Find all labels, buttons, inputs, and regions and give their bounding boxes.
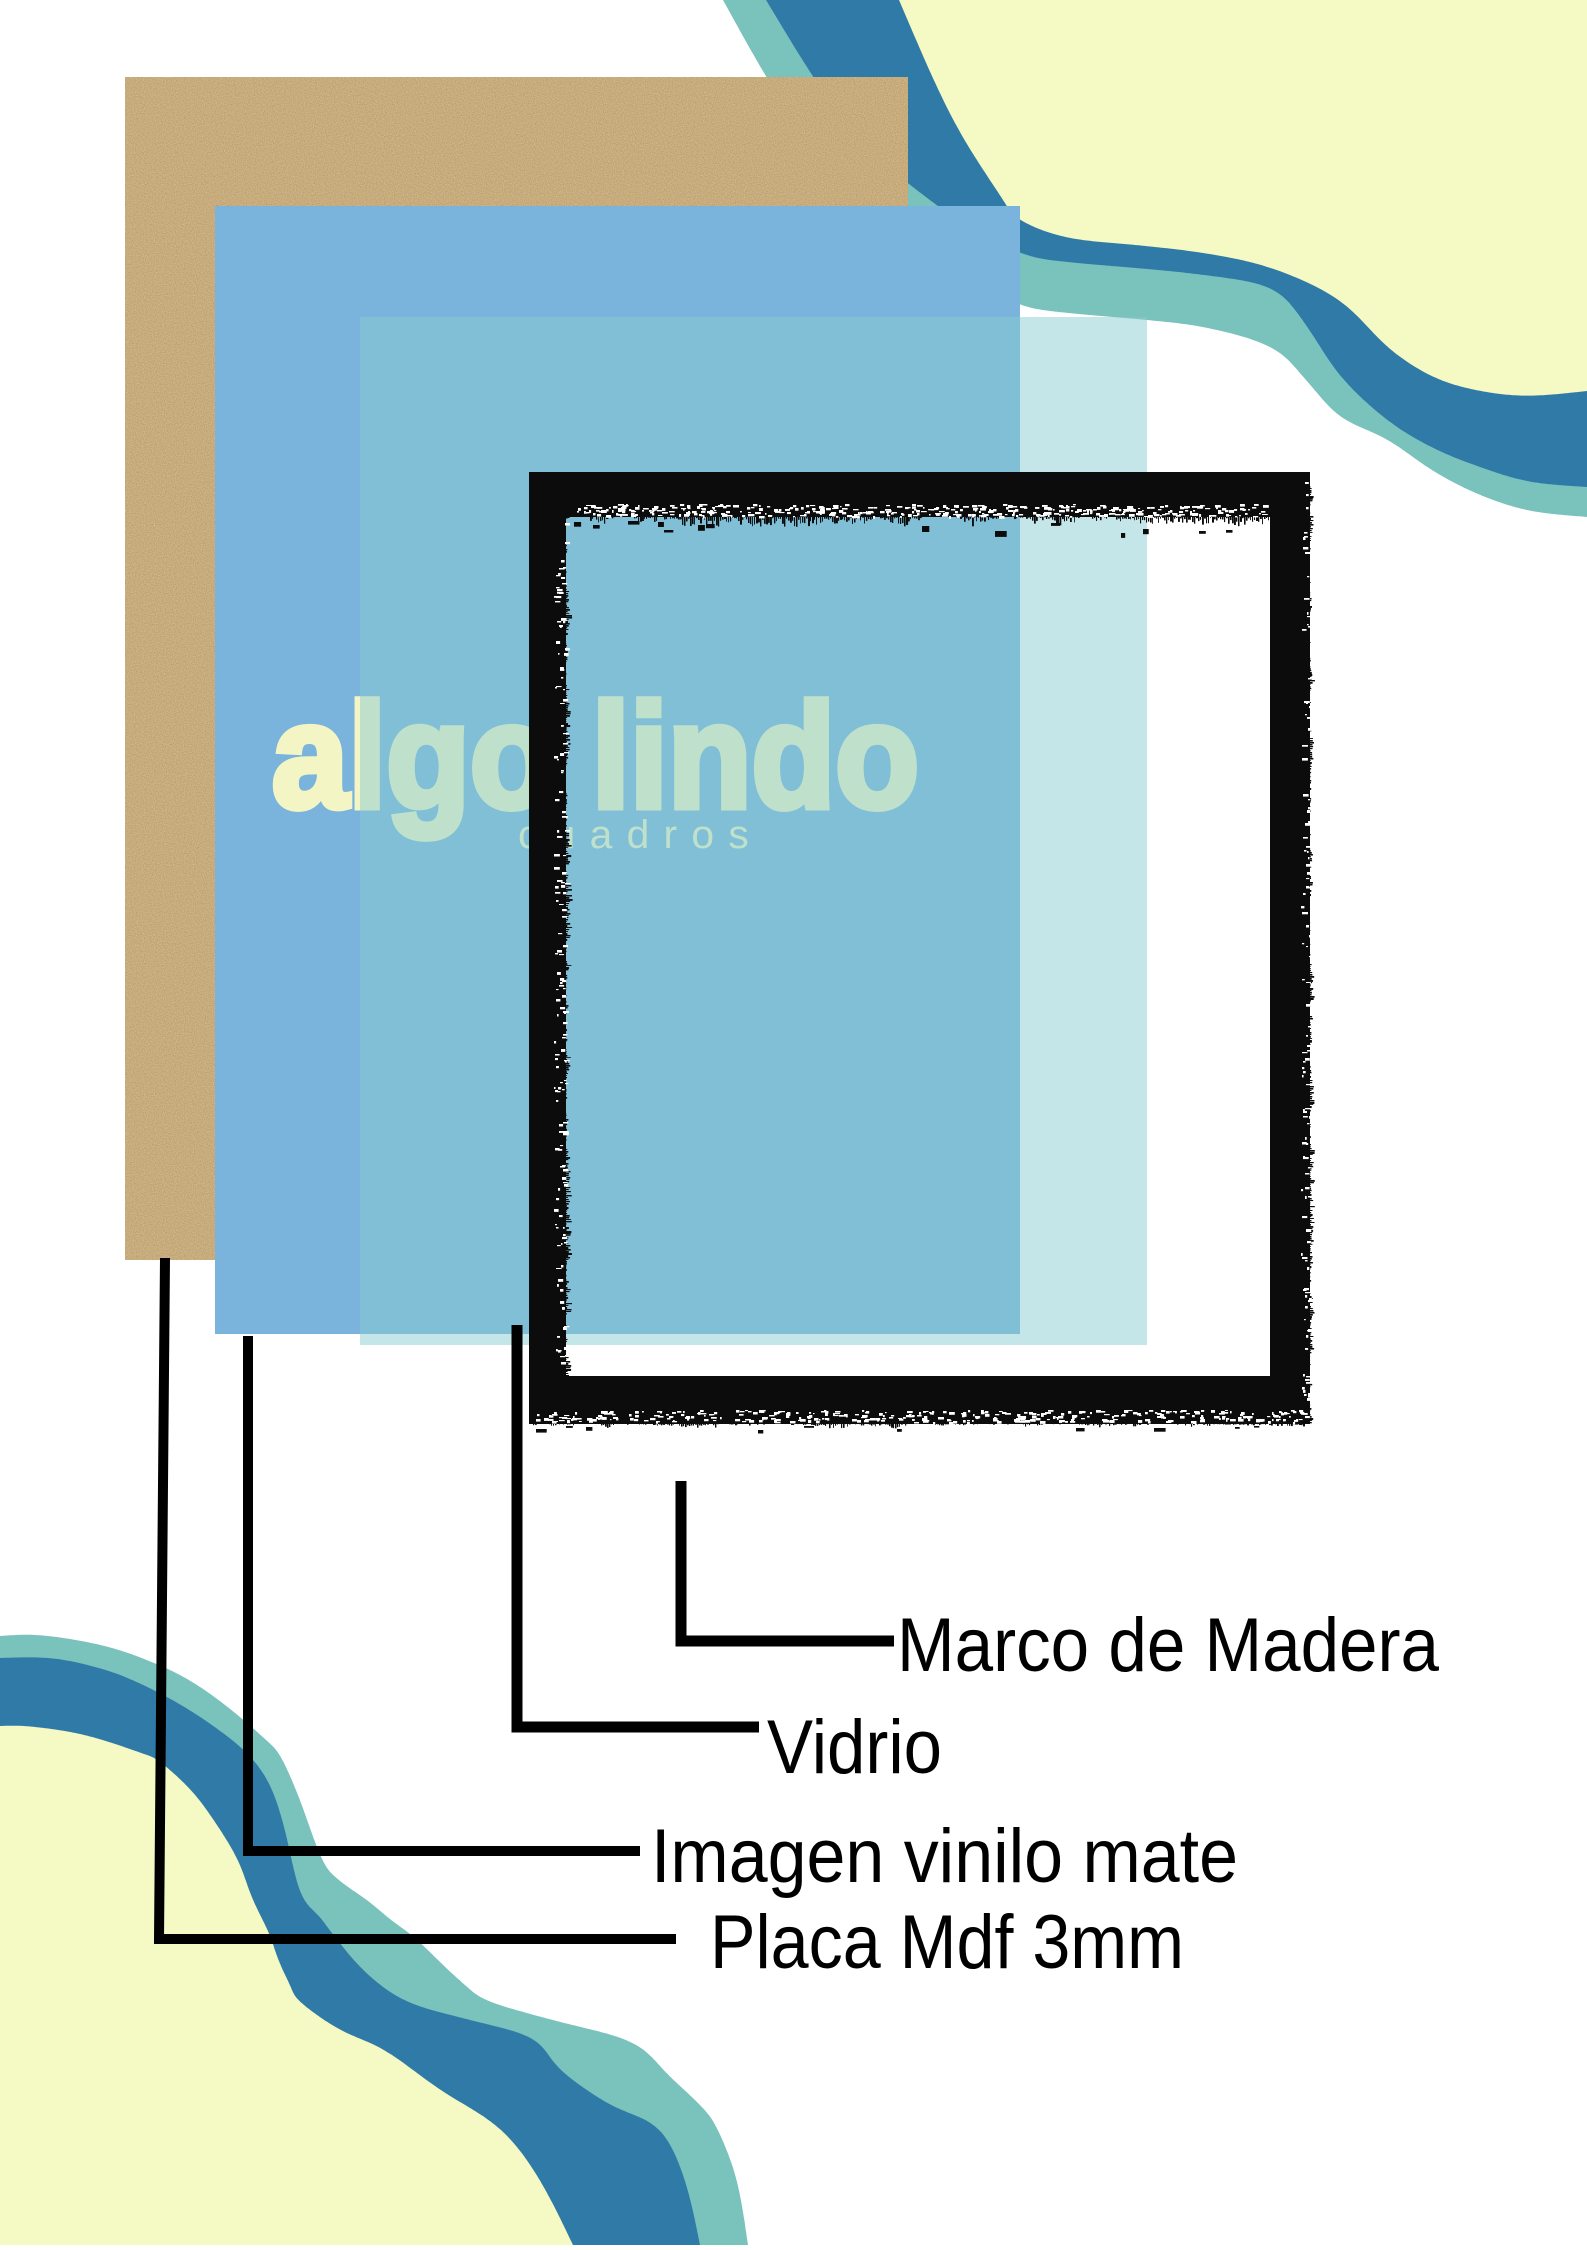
svg-text:Placa Mdf 3mm: Placa Mdf 3mm [710, 1900, 1184, 1985]
svg-text:Marco de Madera: Marco de Madera [897, 1603, 1440, 1688]
svg-text:Imagen vinilo mate: Imagen vinilo mate [651, 1814, 1238, 1899]
svg-text:Vidrio: Vidrio [767, 1705, 942, 1790]
